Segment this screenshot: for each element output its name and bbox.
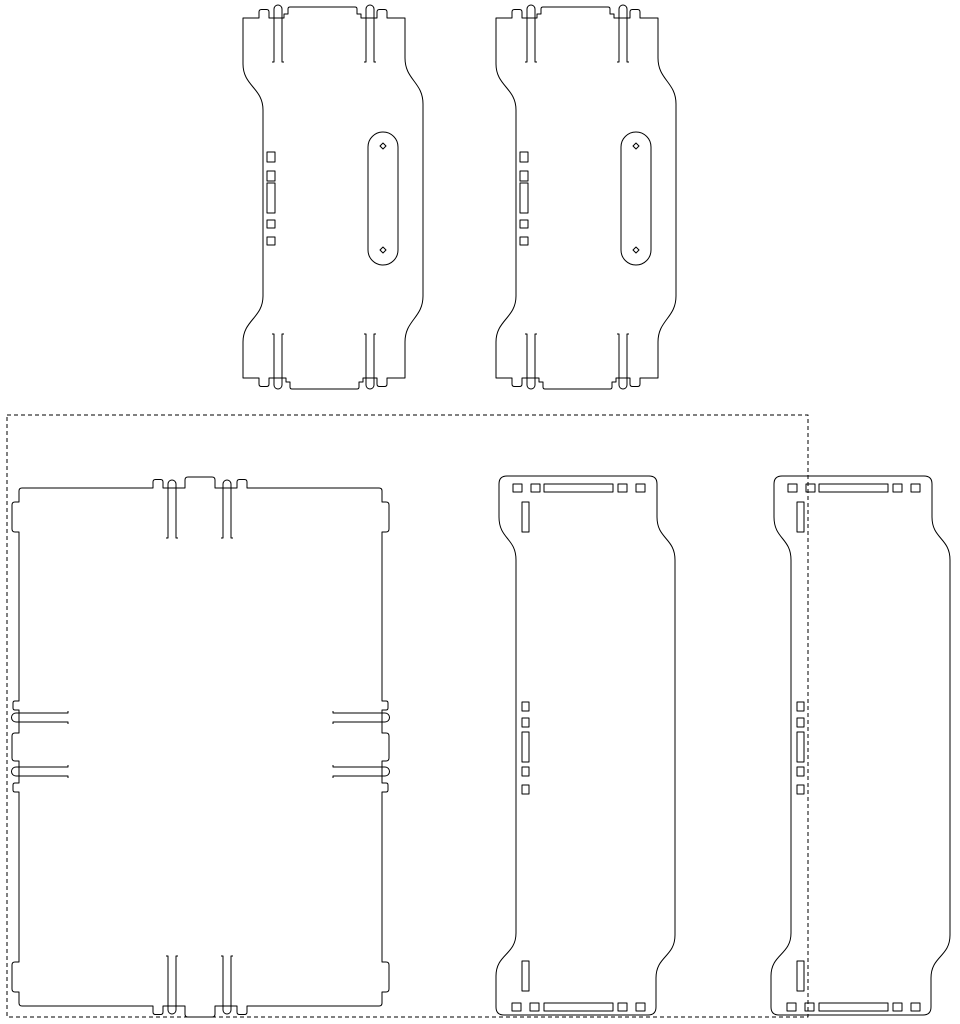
sheet-boundary-dashed-outline	[7, 415, 808, 1017]
top-plate-curve	[633, 143, 639, 149]
side-panel-curve	[522, 702, 529, 711]
side-panel-curve	[893, 484, 902, 492]
side-panel-curve	[522, 732, 529, 762]
cad-drawing-page	[0, 0, 960, 1024]
side-panel-curve	[797, 767, 804, 776]
top-plate-curve	[525, 334, 537, 389]
side-panel-curve	[805, 1003, 814, 1011]
top-plate-curve	[368, 132, 398, 265]
top-plate-curve	[520, 237, 528, 245]
side-panel-2	[771, 476, 950, 1015]
top-plate-curve	[243, 7, 423, 389]
top-plate-curve	[617, 5, 629, 62]
side-panel-curve	[522, 767, 529, 776]
side-panel-curve	[771, 476, 950, 1015]
side-panel-curve	[522, 785, 529, 794]
top-plate-curve	[520, 183, 528, 213]
top-plate-curve	[520, 171, 528, 181]
side-panel-curve	[797, 732, 804, 762]
side-panel-curve	[496, 476, 675, 1015]
side-panel-curve	[797, 961, 804, 991]
base-panel-curve	[12, 765, 69, 778]
drawing-canvas	[0, 0, 960, 1024]
side-panel-curve	[787, 1003, 796, 1011]
top-plate-curve	[380, 247, 386, 253]
side-panel-curve	[544, 484, 613, 492]
top-plate-curve	[525, 5, 537, 62]
side-panel-curve	[797, 502, 804, 532]
top-plate-curve	[364, 5, 376, 62]
top-plate-curve	[267, 220, 275, 228]
side-panel-curve	[618, 1003, 627, 1011]
side-panel-curve	[522, 718, 529, 727]
top-plate-curve	[496, 7, 676, 389]
side-panel-1	[496, 476, 675, 1015]
top-plate-curve	[364, 334, 376, 389]
base-panel-curve	[221, 956, 233, 1014]
top-plate-curve	[267, 171, 275, 181]
side-panel-curve	[797, 718, 804, 727]
side-panel-curve	[544, 1003, 613, 1011]
top-cover-plate-1	[243, 5, 423, 389]
side-panel-curve	[531, 484, 540, 492]
side-panel-curve	[797, 785, 804, 794]
top-plate-curve	[267, 152, 275, 162]
side-panel-curve	[618, 484, 627, 492]
top-plate-curve	[617, 334, 629, 389]
side-panel-curve	[522, 502, 529, 532]
base-panel-curve	[166, 480, 178, 538]
top-plate-curve	[621, 132, 651, 265]
base-panel-curve	[221, 480, 233, 538]
side-panel-curve	[806, 484, 815, 492]
top-plate-curve	[520, 220, 528, 228]
side-panel-curve	[513, 484, 522, 492]
base-panel	[12, 477, 390, 1017]
side-panel-curve	[788, 484, 797, 492]
side-panel-curve	[512, 1003, 521, 1011]
top-plate-curve	[272, 334, 284, 389]
base-panel-curve	[12, 711, 69, 724]
side-panel-curve	[636, 484, 645, 492]
top-plate-curve	[520, 152, 528, 162]
side-panel-curve	[797, 702, 804, 711]
base-panel-curve	[166, 956, 178, 1014]
side-panel-curve	[522, 961, 529, 991]
side-panel-curve	[636, 1003, 645, 1011]
top-cover-plate-2	[496, 5, 676, 389]
top-plate-curve	[272, 5, 284, 62]
top-plate-curve	[267, 237, 275, 245]
side-panel-curve	[911, 484, 920, 492]
top-plate-curve	[380, 143, 386, 149]
base-panel-curve	[12, 477, 389, 1017]
side-panel-curve	[819, 484, 888, 492]
base-panel-curve	[333, 765, 390, 778]
side-panel-curve	[911, 1003, 920, 1011]
top-plate-curve	[633, 247, 639, 253]
top-plate-curve	[267, 183, 275, 213]
base-panel-curve	[333, 711, 390, 724]
side-panel-curve	[530, 1003, 539, 1011]
side-panel-curve	[819, 1003, 888, 1011]
side-panel-curve	[893, 1003, 902, 1011]
